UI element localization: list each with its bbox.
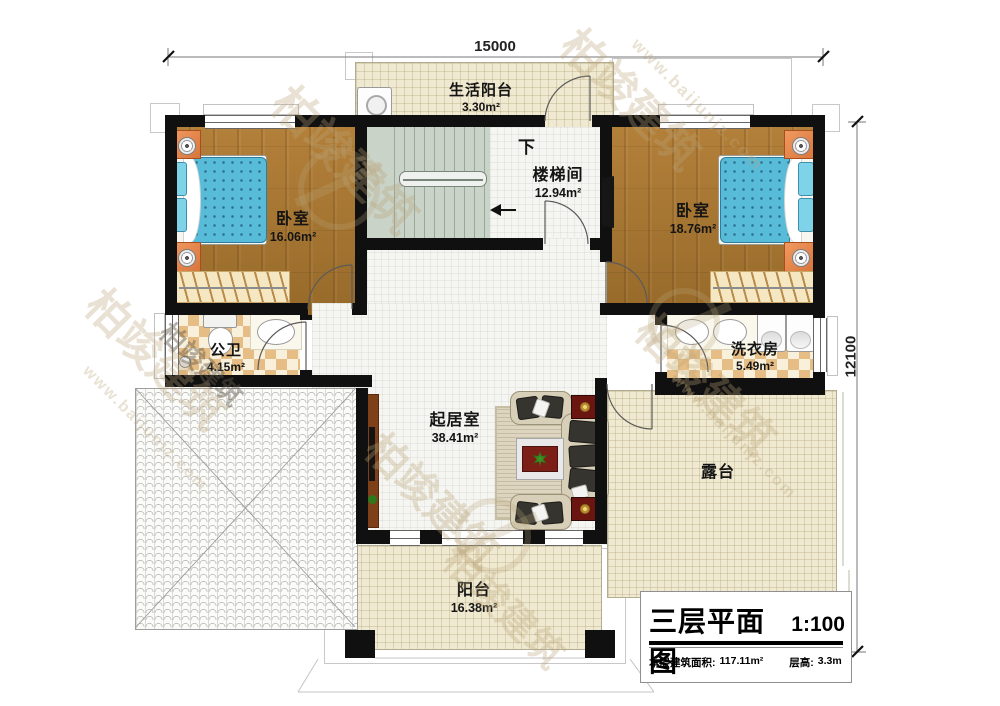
room-area: 18.76m² (638, 222, 748, 237)
room-label-living-room: 起居室 38.41m² (395, 412, 515, 446)
dimension-right: 12100 (843, 322, 860, 392)
wardrobe-left (176, 271, 290, 303)
wall (355, 115, 545, 127)
wall (352, 303, 367, 315)
room-name: 公卫 (181, 342, 271, 360)
room-name: 卧室 (238, 211, 348, 230)
balcony-sliding-door (442, 530, 523, 546)
title-underline (649, 641, 843, 645)
nightstand (784, 242, 815, 272)
room-name: 卧室 (638, 203, 748, 222)
room-area: 3.30m² (421, 100, 541, 114)
room-label-bathroom: 公卫 4.15m² (181, 342, 271, 374)
wall (595, 378, 607, 542)
room-name: 生活阳台 (421, 82, 541, 100)
room-name: 露台 (678, 464, 758, 483)
wall (813, 115, 825, 318)
wall (523, 530, 545, 544)
bed-right-pillow (798, 198, 814, 232)
balcony-post (345, 630, 375, 658)
wall (592, 115, 612, 127)
wall (367, 238, 543, 250)
wall (355, 127, 367, 315)
plan-scale: 1:100 (791, 613, 845, 637)
wall (583, 530, 607, 544)
room-area: 5.49m² (705, 359, 805, 373)
wall (300, 315, 312, 320)
window-sill-left (154, 313, 165, 379)
floor-area-value: 117.11m² (720, 655, 764, 670)
window (660, 115, 750, 129)
room-area: 16.38m² (414, 601, 534, 616)
window-sill-right (827, 316, 838, 376)
loveseat-bottom (510, 494, 572, 530)
window (165, 315, 179, 375)
wall (655, 378, 825, 390)
coffee-table (516, 438, 564, 480)
room-name: 起居室 (395, 412, 515, 431)
wall (165, 375, 372, 387)
wall (356, 530, 390, 544)
wall (300, 370, 312, 375)
balcony-sliding-door (390, 530, 420, 546)
room-area: 12.94m² (503, 186, 613, 201)
room-name: 洗衣房 (705, 341, 805, 359)
nightstand (784, 130, 815, 159)
stair-handrail (399, 171, 487, 187)
room-label-laundry: 洗衣房 5.49m² (705, 341, 805, 373)
floor-area-label: 本层建筑面积: (649, 655, 716, 670)
wall (655, 315, 667, 325)
floor-plan: 生活阳台 3.30m² 下 楼梯间 12.94m² 卧室 16.06m² 卧室 … (0, 0, 1000, 706)
room-name: 阳台 (414, 582, 534, 601)
window-sill-top-right (658, 104, 754, 115)
balcony-post (585, 630, 615, 658)
toilet-tank (203, 314, 237, 328)
stair-flight (367, 127, 490, 238)
room-label-service-balcony: 生活阳台 3.30m² (421, 82, 541, 114)
title-underline-thin (649, 647, 843, 648)
floor-height-value: 3.3m (818, 655, 842, 670)
terrace-floor (607, 390, 837, 598)
room-area: 16.06m² (238, 230, 348, 245)
title-block: 三层平面图 1:100 本层建筑面积: 117.11m² 层高: 3.3m (640, 591, 852, 683)
room-label-bedroom-right: 卧室 18.76m² (638, 203, 748, 237)
room-area: 4.15m² (181, 360, 271, 374)
balcony-sliding-door (545, 530, 583, 546)
wardrobe-right (710, 271, 818, 303)
room-label-bedroom-left: 卧室 16.06m² (238, 211, 348, 245)
dimension-top: 15000 (455, 38, 535, 55)
wall (590, 238, 600, 250)
room-name: 楼梯间 (503, 167, 613, 186)
room-label-balcony: 阳台 16.38m² (414, 582, 534, 616)
room-area: 38.41m² (395, 431, 515, 446)
wall (165, 303, 308, 315)
wall (600, 303, 825, 315)
window (205, 115, 295, 129)
wall (165, 115, 177, 315)
tv-screen (369, 427, 375, 481)
terrace-step (835, 392, 849, 596)
wall (356, 388, 368, 530)
stair-down-note: 下 (512, 138, 542, 158)
window-sill-top-left (203, 104, 299, 115)
laundry-sink (675, 319, 709, 345)
roof-tiles (135, 388, 358, 630)
room-label-terrace: 露台 (678, 464, 758, 483)
bed-right-pillow (798, 162, 814, 196)
window (813, 318, 827, 372)
wall (612, 115, 660, 127)
cabinet-plant (368, 495, 377, 504)
wall (420, 530, 442, 544)
room-label-stairwell: 楼梯间 12.94m² (503, 167, 613, 201)
floor-height-label: 层高: (789, 655, 814, 670)
